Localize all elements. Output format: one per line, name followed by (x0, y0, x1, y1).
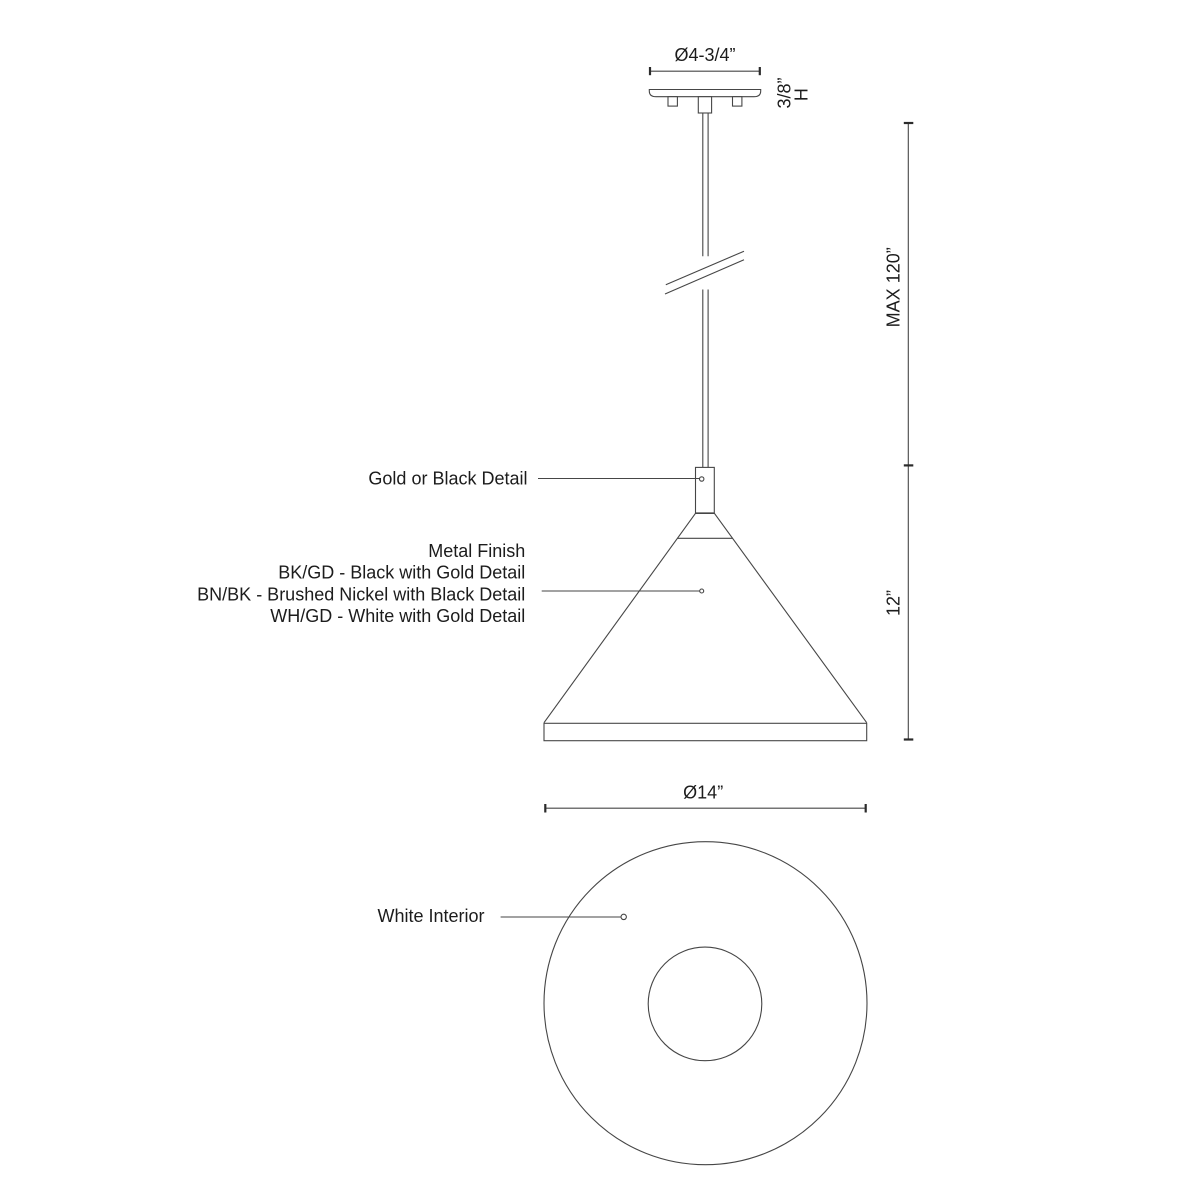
svg-text:MAX 120”: MAX 120” (884, 247, 904, 327)
svg-text:H: H (792, 88, 812, 101)
svg-text:Metal Finish: Metal Finish (428, 541, 525, 561)
svg-text:12”: 12” (884, 590, 904, 616)
svg-text:WH/GD - White with Gold Detail: WH/GD - White with Gold Detail (270, 606, 525, 626)
svg-text:White Interior: White Interior (377, 906, 484, 926)
svg-text:BK/GD - Black with Gold Detail: BK/GD - Black with Gold Detail (278, 563, 525, 583)
svg-text:BN/BK - Brushed Nickel with Bl: BN/BK - Brushed Nickel with Black Detail (197, 584, 525, 604)
svg-text:Gold or Black Detail: Gold or Black Detail (368, 468, 527, 488)
svg-text:Ø14”: Ø14” (683, 783, 723, 803)
svg-text:Ø4-3/4”: Ø4-3/4” (674, 45, 735, 65)
